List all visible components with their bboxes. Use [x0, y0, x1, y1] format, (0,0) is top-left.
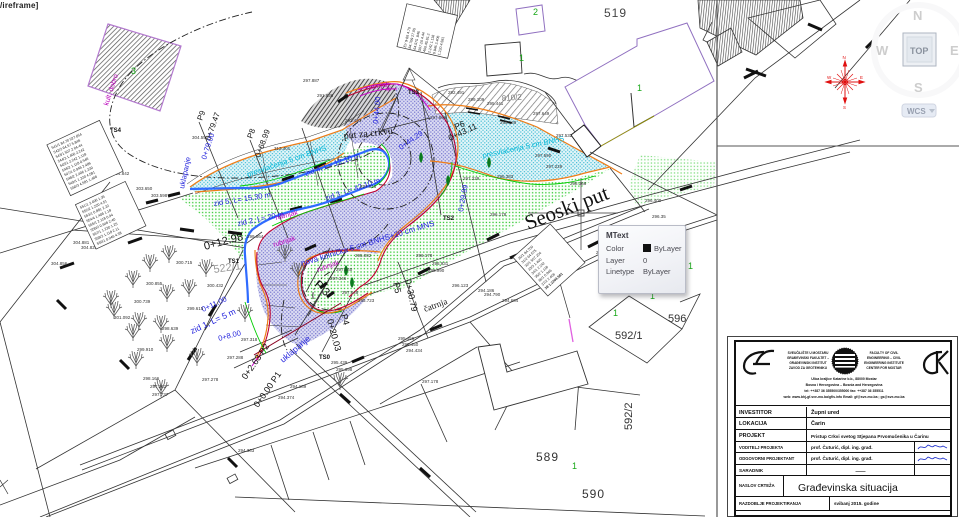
svg-text:Bosna i Hercegovina – Bosnia a: Bosna i Hercegovina – Bosnia and Herzego…: [806, 383, 883, 387]
svg-text:301.092: 301.092: [114, 315, 131, 320]
svg-text:ENGINEERING – CIVIL: ENGINEERING – CIVIL: [867, 356, 901, 360]
svg-text:GRAĐEVINSKI INSTITUT: GRAĐEVINSKI INSTITUT: [789, 361, 826, 365]
svg-text:596: 596: [668, 313, 686, 325]
svg-text:ZAVOD ZA GEOTEHNIKU: ZAVOD ZA GEOTEHNIKU: [789, 366, 828, 370]
svg-text:297.532: 297.532: [556, 133, 573, 138]
svg-text:291.836: 291.836: [317, 93, 334, 98]
svg-text:300.432: 300.432: [207, 283, 224, 288]
svg-text:WCS: WCS: [907, 107, 926, 116]
svg-text:čatrnja: čatrnja: [422, 296, 448, 314]
svg-text:S: S: [914, 80, 923, 95]
svg-text:299.109: 299.109: [468, 97, 485, 102]
svg-text:296.178: 296.178: [416, 253, 433, 258]
svg-text:295.169: 295.169: [500, 120, 517, 125]
svg-text:P4: P4: [339, 313, 352, 326]
svg-text:ENGINEERING INSTITUTE: ENGINEERING INSTITUTE: [864, 361, 904, 365]
svg-text:297.229: 297.229: [463, 176, 480, 181]
svg-text:313.401: 313.401: [274, 146, 291, 151]
svg-text:E: E: [860, 75, 863, 80]
svg-text:web: www.bhj-gf.sve-mo.ba/gfis: web: www.bhj-gf.sve-mo.ba/gfis.info Emai…: [782, 395, 904, 399]
svg-text:298.166: 298.166: [143, 376, 160, 381]
svg-text:1: 1: [519, 53, 524, 63]
svg-text:P8: P8: [245, 127, 257, 140]
svg-text:303.598: 303.598: [151, 193, 168, 198]
svg-text:0+20.03: 0+20.03: [325, 318, 343, 352]
svg-text:0+8.00: 0+8.00: [217, 328, 242, 343]
svg-text:295.723: 295.723: [358, 298, 375, 303]
svg-text:304.856: 304.856: [51, 261, 68, 266]
svg-text:295.441: 295.441: [487, 101, 504, 106]
svg-text:294.604: 294.604: [502, 298, 519, 303]
svg-text:297.278: 297.278: [202, 377, 219, 382]
svg-text:297.016: 297.016: [360, 184, 377, 189]
svg-text:300.855: 300.855: [146, 281, 163, 286]
svg-text:SVEUČILIŠTE U MOSTARU: SVEUČILIŠTE U MOSTARU: [788, 350, 830, 355]
svg-text:295.082: 295.082: [355, 253, 372, 258]
svg-text:296.400: 296.400: [645, 198, 662, 203]
svg-text:0+30.79: 0+30.79: [403, 278, 420, 312]
svg-text:300.715: 300.715: [176, 260, 193, 265]
svg-text:297.590: 297.590: [535, 153, 552, 158]
svg-text:TOP: TOP: [910, 46, 928, 56]
svg-text:297.540: 297.540: [336, 267, 353, 272]
svg-text:0+2.63 P2: 0+2.63 P2: [239, 342, 271, 382]
svg-text:298.990: 298.990: [428, 268, 445, 273]
svg-text:2: 2: [533, 7, 538, 17]
svg-text:297.318: 297.318: [241, 337, 258, 342]
svg-text:298.366: 298.366: [570, 181, 587, 186]
svg-text:295.450: 295.450: [402, 342, 419, 347]
svg-text:Ulica kraljice Katarine b.b.,: Ulica kraljice Katarine b.b., 88000 Most…: [811, 377, 877, 381]
svg-text:TS1: TS1: [228, 259, 240, 265]
svg-text:295.459: 295.459: [398, 336, 415, 341]
svg-text:294.434: 294.434: [406, 348, 423, 353]
svg-text:N: N: [913, 8, 922, 23]
svg-text:294.363: 294.363: [238, 448, 255, 453]
svg-text:FACULTY OF CIVIL: FACULTY OF CIVIL: [870, 351, 899, 355]
svg-text:GRAĐEVINSKI FAKULTET –: GRAĐEVINSKI FAKULTET –: [787, 356, 829, 360]
svg-text:CENTER FOR MOSTAR: CENTER FOR MOSTAR: [866, 366, 902, 370]
svg-text:P5: P5: [391, 281, 403, 294]
svg-text:297.346: 297.346: [330, 276, 347, 281]
svg-text:297.178: 297.178: [422, 379, 439, 384]
svg-text:300.739: 300.739: [134, 299, 151, 304]
svg-text:TS2: TS2: [443, 216, 455, 222]
svg-text:292.491: 292.491: [345, 118, 362, 123]
svg-text:P9: P9: [195, 109, 207, 122]
svg-text:296.178: 296.178: [490, 212, 507, 217]
svg-text:✳: ✳: [385, 84, 393, 94]
svg-text:297.649: 297.649: [533, 111, 550, 116]
svg-text:519: 519: [604, 6, 627, 20]
svg-text:298.639: 298.639: [162, 326, 179, 331]
svg-text:1: 1: [572, 461, 577, 471]
svg-text:295.398: 295.398: [336, 367, 353, 372]
svg-text:TS0: TS0: [319, 355, 331, 361]
svg-text:296.35: 296.35: [652, 214, 666, 219]
svg-text:299.910: 299.910: [137, 347, 154, 352]
svg-text:S: S: [843, 105, 846, 110]
svg-text:592/1: 592/1: [615, 330, 643, 342]
svg-text:1: 1: [613, 308, 618, 318]
svg-text:589: 589: [536, 450, 559, 464]
svg-text:297.896: 297.896: [430, 115, 447, 120]
svg-text:TS3: TS3: [408, 90, 420, 96]
svg-text:299.664: 299.664: [247, 234, 264, 239]
svg-text:296.123: 296.123: [452, 283, 469, 288]
svg-text:1: 1: [688, 261, 693, 271]
svg-text:297.262: 297.262: [150, 384, 167, 389]
svg-text:810/2: 810/2: [502, 93, 523, 103]
svg-text:590: 590: [582, 487, 605, 501]
svg-text:292.491: 292.491: [448, 90, 465, 95]
svg-text:297.229: 297.229: [546, 164, 563, 169]
svg-text:592/2: 592/2: [623, 402, 635, 430]
svg-text:296.383: 296.383: [497, 174, 514, 179]
svg-text:294.374: 294.374: [278, 395, 295, 400]
svg-text:294.790: 294.790: [484, 292, 501, 297]
svg-text:W: W: [827, 75, 832, 80]
svg-text:299.615: 299.615: [187, 306, 204, 311]
svg-text:tel: ++387 36 355500/355000: tel: ++387 36 355500/355000 fax: ++387 3…: [804, 389, 883, 393]
svg-text:3: 3: [131, 66, 136, 76]
svg-text:297.848: 297.848: [342, 290, 359, 295]
svg-text:uklapanje: uklapanje: [177, 156, 192, 189]
svg-text:TS4: TS4: [110, 128, 122, 134]
svg-text:297.887: 297.887: [303, 78, 320, 83]
svg-text:303.650: 303.650: [136, 186, 153, 191]
svg-text:304.550: 304.550: [192, 135, 209, 140]
svg-text:294.189: 294.189: [290, 384, 307, 389]
svg-text:297.288: 297.288: [227, 355, 244, 360]
svg-text:1: 1: [637, 83, 642, 93]
svg-text:N: N: [843, 55, 846, 60]
svg-text:W: W: [876, 43, 889, 58]
svg-text:295.439: 295.439: [331, 360, 348, 365]
svg-text:E: E: [950, 43, 959, 58]
svg-text:297.737: 297.737: [152, 392, 169, 397]
svg-text:296.931: 296.931: [432, 261, 449, 266]
